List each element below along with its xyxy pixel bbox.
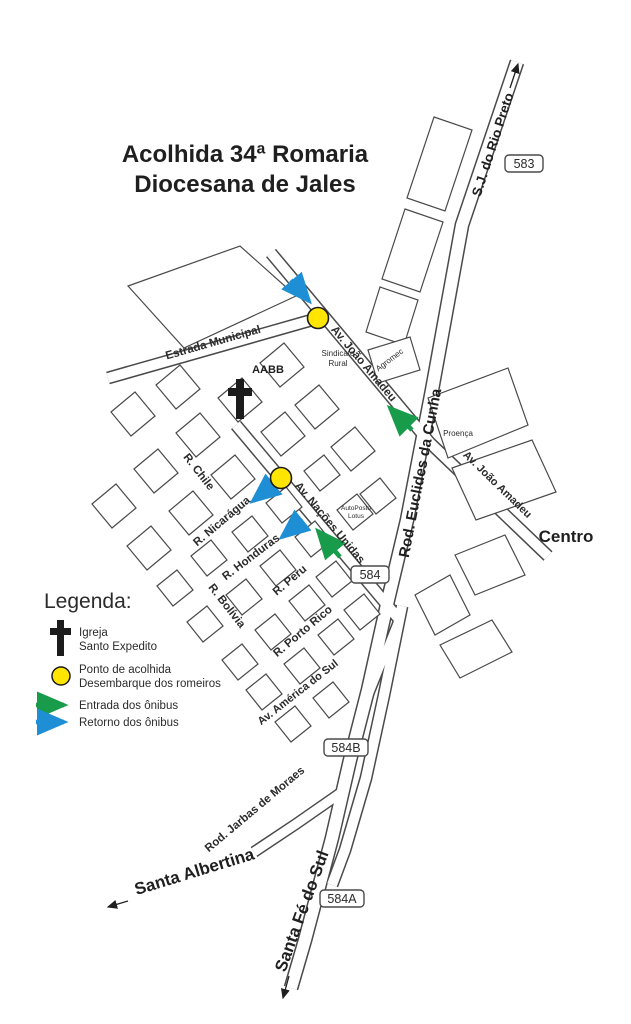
city-block xyxy=(295,385,339,429)
label-centro: Centro xyxy=(539,527,594,546)
label-sj-rio-preto: S.J. do Rio Preto xyxy=(469,91,517,198)
city-block xyxy=(331,427,375,471)
pickup-point-marker xyxy=(308,308,329,329)
label-proenca: Proença xyxy=(443,429,473,438)
city-block xyxy=(211,455,255,499)
legend-return-label: Retorno dos ônibus xyxy=(79,717,179,729)
romaria-map: 583 584 584B 584A Acolhida 34ª Romaria D… xyxy=(0,0,631,1024)
label-chile: R. Chile xyxy=(180,452,216,493)
pickup-point-marker xyxy=(271,468,292,489)
city-block xyxy=(187,606,223,642)
city-block xyxy=(176,413,220,457)
road-nacoes-unidas xyxy=(236,425,398,618)
label-sindicato-line2: Rural xyxy=(328,359,347,368)
city-block xyxy=(382,209,443,292)
map-title-line1: Acolhida 34ª Romaria xyxy=(122,141,369,168)
legend-church-line2: Santo Expedito xyxy=(79,641,157,653)
legend: Legenda: Igreja Santo Expedito Ponto de … xyxy=(36,590,221,729)
arrow-to-santa-albertina-icon xyxy=(108,901,128,907)
city-block xyxy=(261,412,305,456)
city-block xyxy=(415,575,470,635)
legend-pickup-line1: Ponto de acolhida xyxy=(79,664,172,676)
label-autoposto-line1: AutoPosto xyxy=(341,505,371,512)
city-block xyxy=(134,449,178,493)
shield-584: 584 xyxy=(360,568,381,582)
shield-584a: 584A xyxy=(327,892,357,906)
city-blocks xyxy=(92,117,556,742)
city-block xyxy=(127,526,171,570)
legend-church-icon xyxy=(50,620,71,656)
map-title-line2: Diocesana de Jales xyxy=(134,171,355,198)
shield-584b: 584B xyxy=(331,741,360,755)
city-block xyxy=(156,365,200,409)
city-block xyxy=(222,644,258,680)
label-sindicato-line1: Sindicato xyxy=(322,349,355,358)
legend-entry-label: Entrada dos ônibus xyxy=(79,700,178,712)
city-block xyxy=(313,682,349,718)
label-rod-jarbas: Rod. Jarbas de Moraes xyxy=(203,765,307,855)
church-cross-vertical xyxy=(236,379,244,419)
city-block xyxy=(157,570,193,606)
legend-church-line1: Igreja xyxy=(79,627,108,639)
shield-583: 583 xyxy=(514,157,535,171)
legend-cross-horizontal xyxy=(50,628,71,635)
road-shields: 583 584 584B 584A xyxy=(320,155,543,907)
legend-pickup-icon xyxy=(52,667,70,685)
legend-pickup-line2: Desembarque dos romeiros xyxy=(79,678,221,690)
label-aabb: AABB xyxy=(252,364,284,376)
city-block xyxy=(111,392,155,436)
city-block xyxy=(440,620,512,678)
church-cross-horizontal xyxy=(228,388,252,396)
legend-cross-vertical xyxy=(57,620,64,656)
city-block xyxy=(455,535,525,595)
label-autoposto-line2: Lotus xyxy=(348,513,365,520)
label-santa-albertina: Santa Albertina xyxy=(132,844,257,899)
map-page: 583 584 584B 584A Acolhida 34ª Romaria D… xyxy=(0,0,631,1024)
city-block xyxy=(428,368,528,458)
city-block xyxy=(318,619,354,655)
city-block xyxy=(366,287,418,345)
city-block xyxy=(304,455,340,491)
legend-heading: Legenda: xyxy=(44,590,132,613)
city-block xyxy=(407,117,472,211)
city-block xyxy=(92,484,136,528)
